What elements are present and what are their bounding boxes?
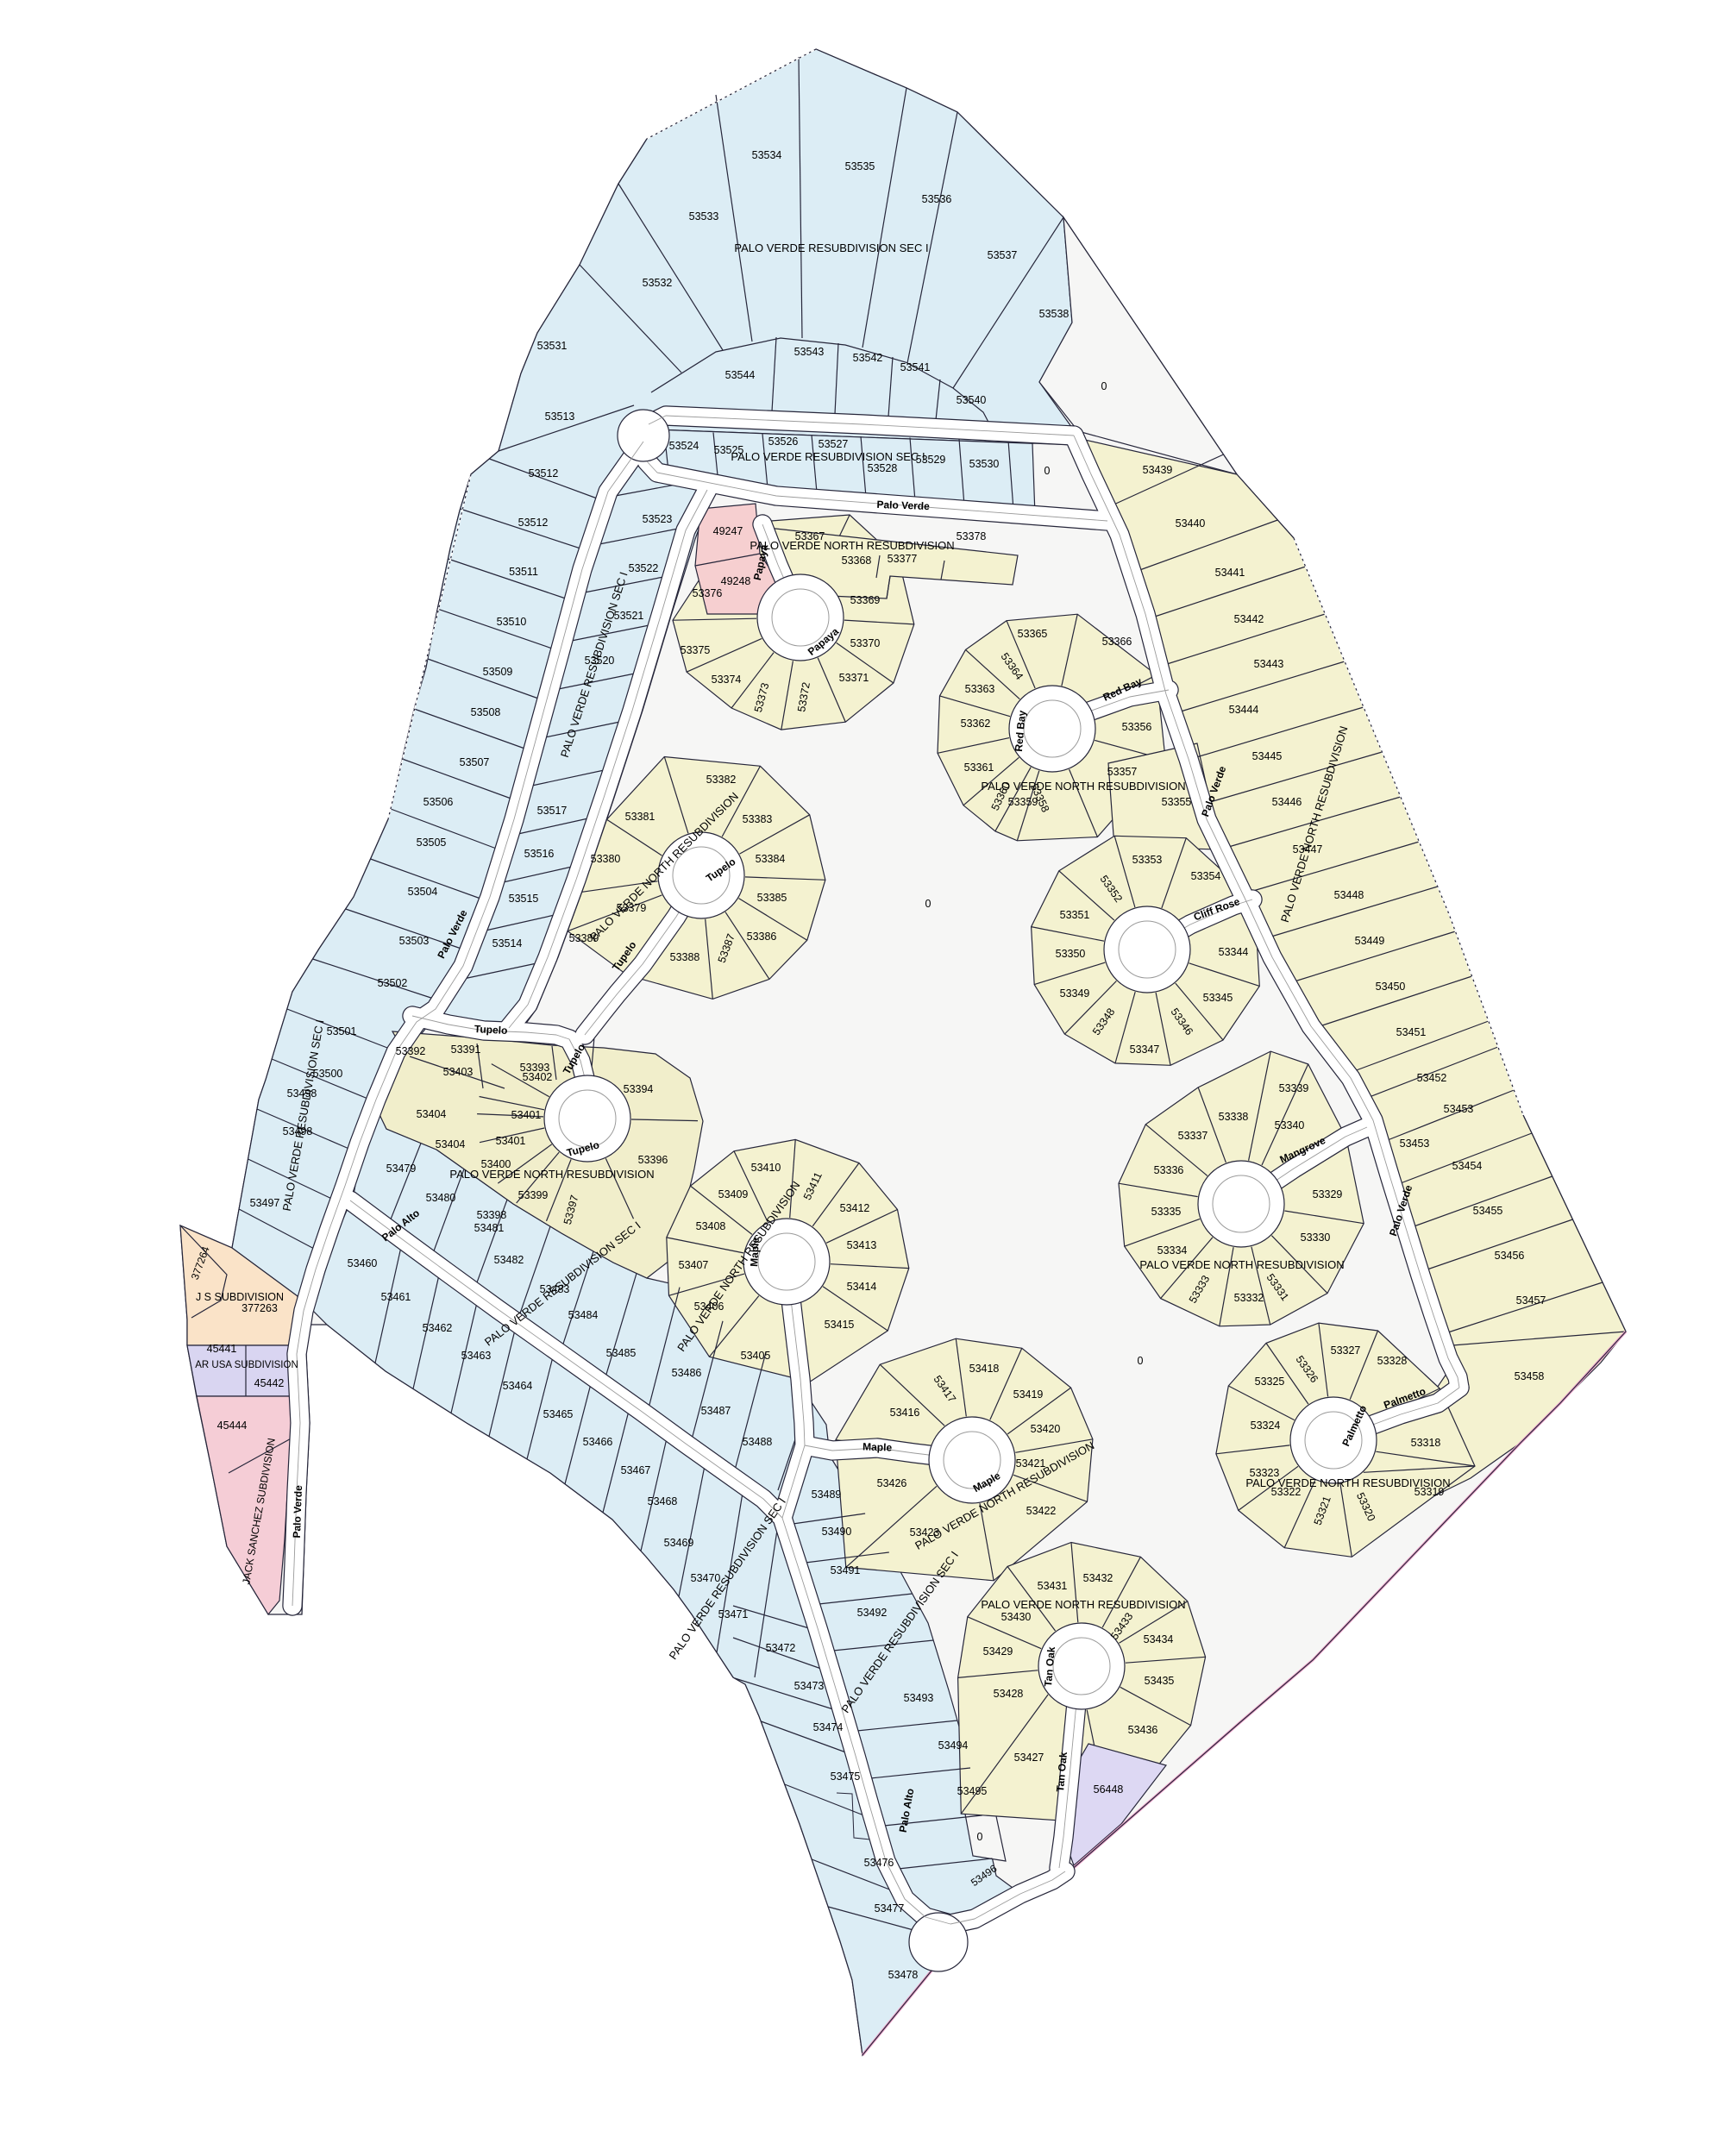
svg-text:53422: 53422 bbox=[1026, 1505, 1057, 1517]
svg-text:53538: 53538 bbox=[1039, 308, 1069, 320]
svg-text:53353: 53353 bbox=[1132, 854, 1163, 866]
svg-text:53511: 53511 bbox=[509, 566, 538, 578]
svg-text:53507: 53507 bbox=[460, 756, 490, 768]
svg-text:53494: 53494 bbox=[938, 1739, 969, 1752]
svg-text:53497: 53497 bbox=[250, 1197, 280, 1209]
svg-text:53542: 53542 bbox=[853, 352, 883, 364]
svg-text:53383: 53383 bbox=[743, 813, 773, 825]
svg-text:53454: 53454 bbox=[1452, 1160, 1483, 1172]
svg-text:53465: 53465 bbox=[543, 1408, 574, 1420]
svg-text:53464: 53464 bbox=[503, 1380, 533, 1392]
svg-text:53428: 53428 bbox=[994, 1688, 1024, 1700]
svg-text:53419: 53419 bbox=[1013, 1388, 1044, 1401]
svg-text:53436: 53436 bbox=[1128, 1724, 1158, 1736]
svg-text:53478: 53478 bbox=[888, 1969, 919, 1981]
svg-text:0: 0 bbox=[925, 898, 931, 910]
svg-text:53528: 53528 bbox=[868, 462, 898, 474]
svg-text:53457: 53457 bbox=[1516, 1294, 1546, 1307]
svg-text:53375: 53375 bbox=[681, 644, 711, 656]
svg-text:53388: 53388 bbox=[670, 951, 700, 963]
svg-text:AR USA SUBDIVISION: AR USA SUBDIVISION bbox=[195, 1360, 298, 1370]
svg-text:53442: 53442 bbox=[1234, 613, 1264, 625]
svg-text:53504: 53504 bbox=[408, 886, 438, 898]
svg-text:53523: 53523 bbox=[643, 513, 673, 525]
svg-text:53477: 53477 bbox=[875, 1902, 905, 1915]
svg-text:53324: 53324 bbox=[1251, 1420, 1281, 1432]
svg-text:53361: 53361 bbox=[964, 761, 994, 774]
svg-text:53537: 53537 bbox=[988, 249, 1018, 261]
svg-text:53526: 53526 bbox=[768, 436, 799, 448]
svg-text:53512: 53512 bbox=[529, 467, 559, 479]
svg-text:53441: 53441 bbox=[1215, 567, 1245, 579]
svg-text:53453: 53453 bbox=[1444, 1103, 1474, 1115]
svg-text:53404: 53404 bbox=[417, 1108, 447, 1120]
svg-text:53435: 53435 bbox=[1145, 1675, 1175, 1687]
svg-text:53382: 53382 bbox=[706, 774, 737, 786]
svg-text:53410: 53410 bbox=[751, 1162, 781, 1174]
svg-text:53370: 53370 bbox=[850, 637, 881, 649]
svg-text:PALO VERDE RESUBDIVISION SEC I: PALO VERDE RESUBDIVISION SEC I bbox=[734, 241, 928, 254]
svg-text:53401: 53401 bbox=[511, 1109, 542, 1121]
svg-text:53366: 53366 bbox=[1102, 636, 1132, 648]
svg-text:53334: 53334 bbox=[1157, 1244, 1188, 1257]
svg-text:53530: 53530 bbox=[969, 458, 1000, 470]
svg-text:53407: 53407 bbox=[679, 1259, 709, 1271]
svg-text:53490: 53490 bbox=[822, 1526, 852, 1538]
svg-text:53432: 53432 bbox=[1083, 1572, 1113, 1584]
svg-text:53427: 53427 bbox=[1014, 1752, 1044, 1764]
svg-text:53484: 53484 bbox=[568, 1309, 599, 1321]
svg-text:53493: 53493 bbox=[904, 1692, 934, 1704]
svg-text:53328: 53328 bbox=[1377, 1355, 1408, 1367]
svg-text:53534: 53534 bbox=[752, 149, 782, 161]
svg-text:53480: 53480 bbox=[426, 1192, 456, 1204]
svg-text:53329: 53329 bbox=[1313, 1188, 1343, 1200]
svg-text:53522: 53522 bbox=[629, 562, 659, 574]
svg-text:PALO VERDE NORTH RESUBDIVISION: PALO VERDE NORTH RESUBDIVISION bbox=[1139, 1258, 1344, 1271]
svg-text:53374: 53374 bbox=[712, 674, 742, 686]
svg-text:53532: 53532 bbox=[643, 277, 673, 289]
svg-text:53510: 53510 bbox=[497, 616, 527, 628]
svg-text:53487: 53487 bbox=[701, 1405, 731, 1417]
svg-text:53336: 53336 bbox=[1154, 1164, 1184, 1176]
svg-text:53466: 53466 bbox=[583, 1436, 613, 1448]
svg-text:53543: 53543 bbox=[794, 346, 825, 358]
svg-text:53335: 53335 bbox=[1151, 1206, 1182, 1218]
svg-text:53527: 53527 bbox=[819, 438, 849, 450]
svg-text:53385: 53385 bbox=[757, 892, 787, 904]
svg-text:53513: 53513 bbox=[545, 411, 575, 423]
svg-text:53479: 53479 bbox=[386, 1163, 417, 1175]
svg-text:56448: 56448 bbox=[1094, 1783, 1124, 1796]
svg-text:53378: 53378 bbox=[957, 530, 987, 542]
svg-text:53475: 53475 bbox=[831, 1771, 861, 1783]
svg-text:53405: 53405 bbox=[741, 1350, 771, 1362]
svg-text:53339: 53339 bbox=[1279, 1082, 1309, 1094]
svg-text:53398: 53398 bbox=[477, 1209, 507, 1221]
svg-text:53495: 53495 bbox=[957, 1785, 988, 1797]
svg-text:53508: 53508 bbox=[471, 706, 501, 718]
svg-text:53426: 53426 bbox=[877, 1477, 907, 1489]
svg-text:53332: 53332 bbox=[1234, 1292, 1264, 1304]
svg-text:53413: 53413 bbox=[847, 1239, 877, 1251]
svg-text:53391: 53391 bbox=[451, 1044, 481, 1056]
svg-text:53338: 53338 bbox=[1219, 1111, 1249, 1123]
svg-text:53451: 53451 bbox=[1396, 1026, 1427, 1038]
svg-text:53448: 53448 bbox=[1334, 889, 1364, 901]
svg-text:53416: 53416 bbox=[890, 1407, 920, 1419]
svg-text:45441: 45441 bbox=[207, 1343, 237, 1355]
svg-text:53347: 53347 bbox=[1130, 1044, 1160, 1056]
svg-text:53445: 53445 bbox=[1252, 750, 1283, 762]
svg-text:PALO VERDE NORTH RESUBDIVISION: PALO VERDE NORTH RESUBDIVISION bbox=[1245, 1476, 1450, 1489]
svg-text:53384: 53384 bbox=[756, 853, 786, 865]
svg-text:53461: 53461 bbox=[381, 1291, 411, 1303]
svg-text:0: 0 bbox=[1101, 380, 1107, 392]
svg-text:53536: 53536 bbox=[922, 193, 952, 205]
svg-text:377263: 377263 bbox=[241, 1302, 278, 1314]
svg-text:53452: 53452 bbox=[1417, 1072, 1447, 1084]
svg-text:53327: 53327 bbox=[1331, 1344, 1361, 1357]
svg-text:53472: 53472 bbox=[766, 1642, 796, 1654]
svg-text:53486: 53486 bbox=[672, 1367, 702, 1379]
svg-text:45444: 45444 bbox=[217, 1420, 248, 1432]
svg-text:53517: 53517 bbox=[537, 805, 568, 817]
svg-text:53501: 53501 bbox=[327, 1025, 357, 1037]
svg-text:53376: 53376 bbox=[693, 587, 723, 599]
svg-text:53344: 53344 bbox=[1219, 946, 1249, 958]
svg-text:53393: 53393 bbox=[520, 1062, 550, 1074]
svg-text:53371: 53371 bbox=[839, 672, 869, 684]
svg-text:53386: 53386 bbox=[747, 931, 777, 943]
svg-text:53446: 53446 bbox=[1272, 796, 1302, 808]
svg-text:53544: 53544 bbox=[725, 369, 756, 381]
svg-text:53469: 53469 bbox=[664, 1537, 694, 1549]
svg-text:53521: 53521 bbox=[614, 610, 644, 622]
svg-text:53515: 53515 bbox=[509, 893, 539, 905]
svg-text:53524: 53524 bbox=[669, 440, 699, 452]
svg-text:53481: 53481 bbox=[474, 1222, 505, 1234]
svg-text:53482: 53482 bbox=[494, 1254, 524, 1266]
svg-text:53503: 53503 bbox=[399, 935, 430, 947]
svg-text:53365: 53365 bbox=[1018, 628, 1048, 640]
svg-text:53369: 53369 bbox=[850, 594, 881, 606]
svg-text:53318: 53318 bbox=[1411, 1437, 1441, 1449]
svg-text:53514: 53514 bbox=[492, 937, 523, 950]
svg-text:53350: 53350 bbox=[1056, 948, 1086, 960]
svg-text:53460: 53460 bbox=[348, 1257, 378, 1269]
svg-text:Maple: Maple bbox=[862, 1440, 893, 1453]
svg-text:53412: 53412 bbox=[840, 1202, 870, 1214]
svg-text:53330: 53330 bbox=[1301, 1232, 1331, 1244]
svg-text:53403: 53403 bbox=[443, 1066, 474, 1078]
svg-text:53363: 53363 bbox=[965, 683, 995, 695]
svg-text:53535: 53535 bbox=[845, 160, 875, 172]
svg-text:53408: 53408 bbox=[696, 1220, 726, 1232]
svg-text:53368: 53368 bbox=[842, 555, 872, 567]
svg-text:53439: 53439 bbox=[1143, 464, 1173, 476]
svg-text:53468: 53468 bbox=[648, 1495, 678, 1507]
svg-text:53356: 53356 bbox=[1122, 721, 1152, 733]
svg-text:53474: 53474 bbox=[813, 1721, 844, 1733]
svg-text:53491: 53491 bbox=[831, 1564, 861, 1576]
svg-text:PALO VERDE NORTH RESUBDIVISION: PALO VERDE NORTH RESUBDIVISION bbox=[981, 780, 1185, 793]
svg-text:53467: 53467 bbox=[621, 1464, 651, 1476]
svg-text:53392: 53392 bbox=[396, 1045, 426, 1057]
svg-text:53349: 53349 bbox=[1060, 987, 1090, 1000]
svg-text:0: 0 bbox=[1044, 465, 1051, 477]
svg-text:53458: 53458 bbox=[1515, 1370, 1545, 1382]
svg-text:53462: 53462 bbox=[423, 1322, 453, 1334]
svg-text:53396: 53396 bbox=[638, 1154, 668, 1166]
svg-text:53502: 53502 bbox=[378, 977, 408, 989]
svg-text:53337: 53337 bbox=[1178, 1130, 1208, 1142]
svg-text:53540: 53540 bbox=[957, 394, 987, 406]
svg-text:53512: 53512 bbox=[518, 517, 549, 529]
svg-text:PALO VERDE NORTH RESUBDIVISION: PALO VERDE NORTH RESUBDIVISION bbox=[449, 1168, 654, 1181]
svg-text:53404: 53404 bbox=[436, 1138, 466, 1150]
svg-text:53456: 53456 bbox=[1495, 1250, 1525, 1262]
svg-text:J S SUBDIVISION: J S SUBDIVISION bbox=[196, 1291, 284, 1303]
svg-text:53399: 53399 bbox=[518, 1189, 549, 1201]
svg-text:53516: 53516 bbox=[524, 848, 555, 860]
svg-text:53455: 53455 bbox=[1473, 1205, 1503, 1217]
svg-text:53453: 53453 bbox=[1400, 1138, 1430, 1150]
svg-text:53450: 53450 bbox=[1376, 981, 1406, 993]
svg-text:Tupelo: Tupelo bbox=[474, 1023, 508, 1037]
svg-text:Palo Verde: Palo Verde bbox=[876, 498, 930, 512]
svg-text:53471: 53471 bbox=[718, 1608, 749, 1620]
svg-text:Maple: Maple bbox=[748, 1237, 762, 1267]
svg-text:PALO VERDE RESUBDIVISION SEC I: PALO VERDE RESUBDIVISION SEC I bbox=[731, 450, 925, 463]
svg-text:53506: 53506 bbox=[423, 796, 454, 808]
svg-text:53355: 53355 bbox=[1162, 796, 1192, 808]
svg-text:53351: 53351 bbox=[1060, 909, 1090, 921]
svg-text:53488: 53488 bbox=[743, 1436, 773, 1448]
svg-text:53429: 53429 bbox=[983, 1645, 1013, 1658]
svg-text:53415: 53415 bbox=[825, 1319, 855, 1331]
svg-text:53345: 53345 bbox=[1203, 992, 1233, 1004]
svg-text:0: 0 bbox=[1138, 1355, 1144, 1367]
svg-text:53340: 53340 bbox=[1275, 1119, 1305, 1131]
svg-text:53394: 53394 bbox=[624, 1083, 654, 1095]
svg-text:53431: 53431 bbox=[1038, 1580, 1068, 1592]
svg-text:53325: 53325 bbox=[1255, 1376, 1285, 1388]
svg-text:0: 0 bbox=[977, 1831, 983, 1843]
svg-text:53420: 53420 bbox=[1031, 1423, 1061, 1435]
svg-text:53505: 53505 bbox=[417, 837, 447, 849]
svg-text:53401: 53401 bbox=[496, 1135, 526, 1147]
svg-text:53434: 53434 bbox=[1144, 1633, 1174, 1645]
svg-text:53485: 53485 bbox=[606, 1347, 637, 1359]
svg-text:49247: 49247 bbox=[713, 525, 743, 537]
svg-text:53473: 53473 bbox=[794, 1680, 825, 1692]
svg-text:53449: 53449 bbox=[1355, 935, 1385, 947]
svg-text:53463: 53463 bbox=[461, 1350, 492, 1362]
svg-text:Palo Verde: Palo Verde bbox=[291, 1485, 304, 1539]
svg-text:53444: 53444 bbox=[1229, 704, 1259, 716]
svg-text:45442: 45442 bbox=[254, 1377, 285, 1389]
svg-text:53377: 53377 bbox=[888, 553, 918, 565]
svg-text:PALO VERDE NORTH RESUBDIVISION: PALO VERDE NORTH RESUBDIVISION bbox=[981, 1598, 1185, 1611]
svg-text:53381: 53381 bbox=[625, 811, 655, 823]
svg-text:53443: 53443 bbox=[1254, 658, 1284, 670]
svg-text:53492: 53492 bbox=[857, 1607, 888, 1619]
svg-text:53354: 53354 bbox=[1191, 870, 1221, 882]
svg-text:53414: 53414 bbox=[847, 1281, 877, 1293]
svg-text:53357: 53357 bbox=[1107, 766, 1138, 778]
svg-text:53440: 53440 bbox=[1176, 517, 1206, 530]
svg-text:49248: 49248 bbox=[721, 575, 751, 587]
svg-text:53418: 53418 bbox=[969, 1363, 1000, 1375]
svg-text:53362: 53362 bbox=[961, 718, 991, 730]
svg-text:PALO VERDE NORTH RESUBDIVISION: PALO VERDE NORTH RESUBDIVISION bbox=[750, 539, 954, 552]
svg-text:53531: 53531 bbox=[537, 340, 568, 352]
svg-text:53509: 53509 bbox=[483, 666, 513, 678]
svg-text:53533: 53533 bbox=[689, 210, 719, 222]
svg-text:53380: 53380 bbox=[591, 853, 621, 865]
svg-text:53409: 53409 bbox=[718, 1188, 749, 1200]
svg-text:53541: 53541 bbox=[900, 361, 931, 373]
svg-text:53489: 53489 bbox=[812, 1489, 842, 1501]
svg-text:53430: 53430 bbox=[1001, 1611, 1032, 1623]
svg-text:53476: 53476 bbox=[864, 1857, 894, 1869]
